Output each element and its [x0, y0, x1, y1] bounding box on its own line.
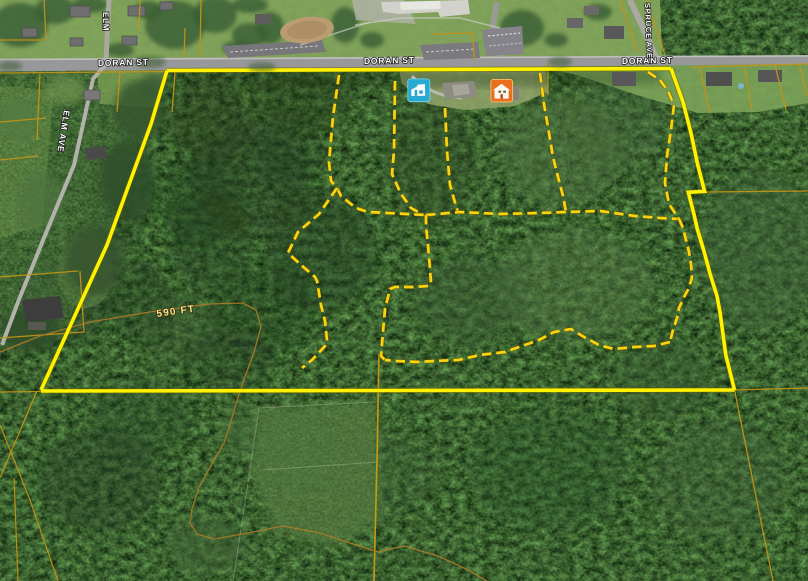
svg-text:ELM: ELM — [101, 12, 110, 31]
svg-text:DORAN ST: DORAN ST — [98, 57, 149, 68]
svg-text:DORAN ST: DORAN ST — [364, 55, 415, 66]
